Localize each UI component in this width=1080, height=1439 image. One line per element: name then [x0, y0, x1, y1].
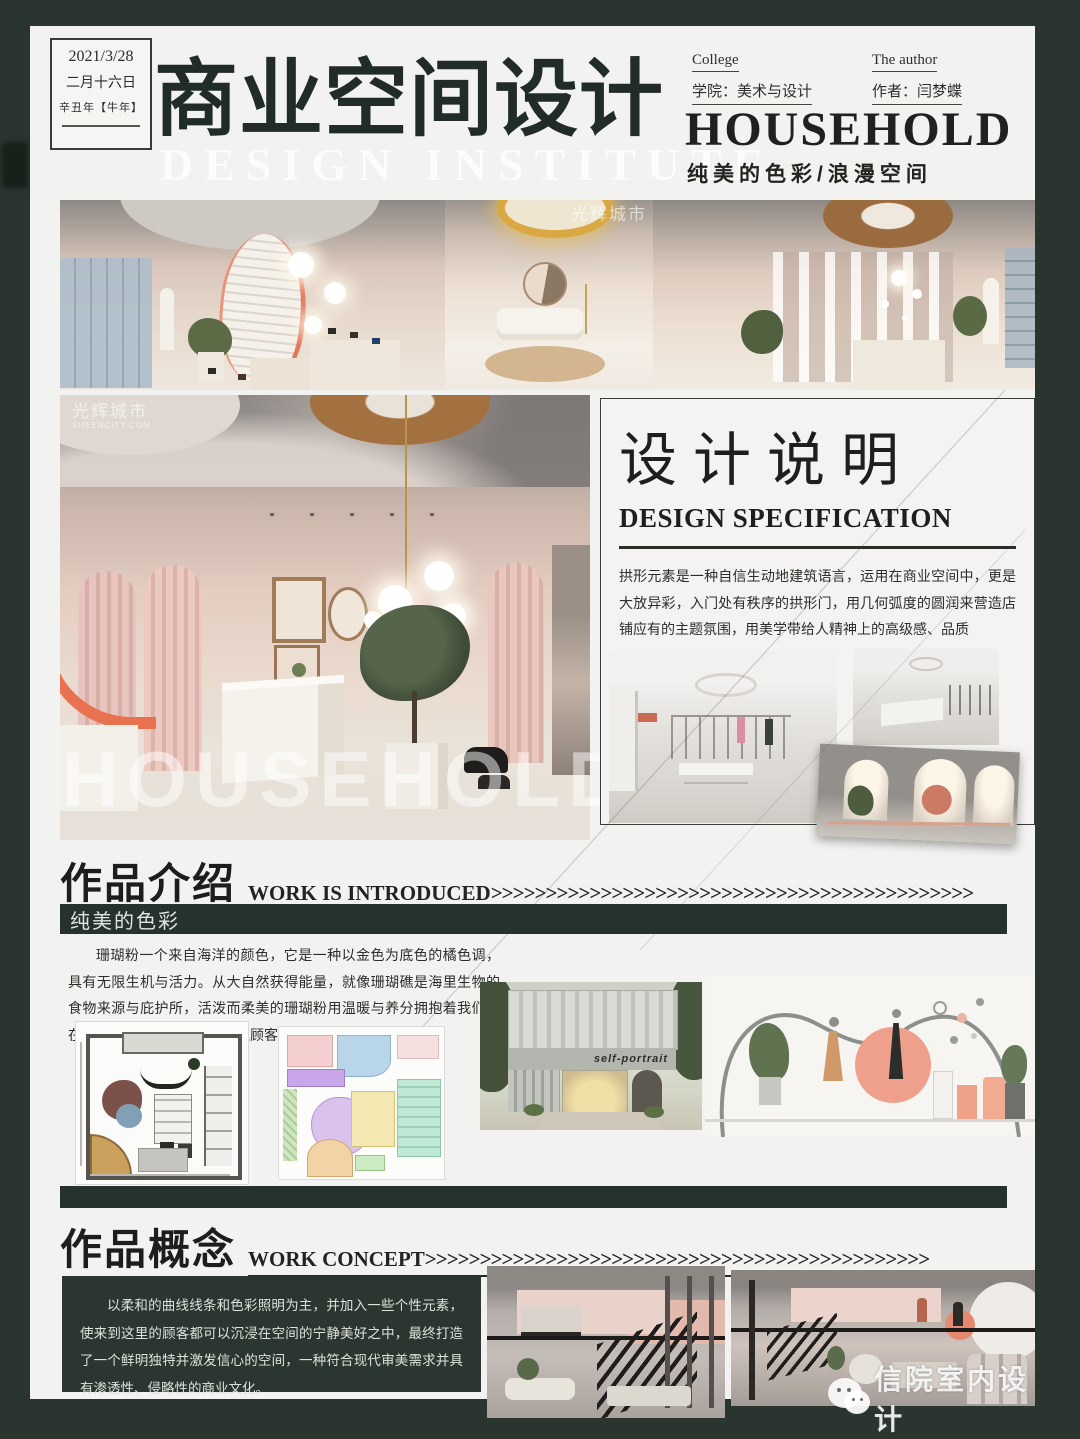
display-table [679, 763, 753, 775]
pendant-light [288, 252, 314, 278]
stair-white [60, 725, 138, 811]
lounge-blob-blue [116, 1104, 142, 1128]
zone-yellow [351, 1091, 395, 1147]
design-spec-body: 拱形元素是一种自信生动地建筑语言，运用在商业空间中，更是大放异彩，入门处有秩序的… [619, 563, 1016, 643]
work-concept-body-box: 以柔和的曲线线条和色彩照明为主，并加入一些个性元素，使来到这里的顾客都可以沉浸在… [62, 1276, 481, 1392]
plant-pot-right [1005, 1083, 1025, 1119]
side-window [1005, 248, 1035, 368]
window-wall [60, 258, 152, 388]
panorama-render-1 [60, 200, 445, 390]
wall-trinkets [933, 1001, 947, 1015]
chair-silhouette [464, 747, 508, 773]
wall-mirror [523, 262, 567, 306]
sheencity-watermark: 光辉城市 SHEENCITY.COM [72, 403, 151, 430]
wechat-icon [828, 1378, 866, 1418]
design-spec-divider [619, 546, 1016, 549]
zone-mint [397, 1079, 441, 1157]
fixture-grid [154, 1094, 192, 1144]
glow-arch-3 [973, 764, 1016, 826]
sofa-lower [505, 1378, 575, 1400]
poster-frame: 2021/3/28 二月十六日 辛丑年【牛年】 商业空间设计 DESIGN IN… [0, 0, 1080, 1439]
panorama-render-3 [653, 200, 1035, 390]
panorama-render-2: 光辉城市 [445, 200, 653, 390]
tree-planter [386, 743, 448, 809]
date-gregorian: 2021/3/28 [69, 48, 134, 66]
floor-line [705, 1119, 1035, 1122]
wechat-eye-2 [847, 1388, 851, 1392]
rug-grey [138, 1148, 188, 1172]
college-label: College [692, 52, 739, 72]
date-divider [62, 125, 140, 127]
wechat-eye-4 [860, 1398, 863, 1401]
spot-track [270, 513, 450, 516]
concept-section-render-1 [487, 1266, 725, 1418]
sign-band: self-portrait [508, 1048, 676, 1070]
arch-curtain-3 [488, 563, 544, 763]
shelf-line [827, 821, 1011, 826]
pink-garment [737, 717, 745, 743]
work-intro-arrows: >>>>>>>>>>>>>>>>>>>>>>>>>>>>>>>>>>>>>>>>… [491, 881, 974, 905]
ceiling-light-ring [695, 673, 757, 697]
reception-desk [222, 683, 344, 784]
floor-plan-furniture [75, 1021, 249, 1185]
plant-pot-left [759, 1077, 781, 1105]
platform-bed [881, 698, 943, 727]
arch-display-render [705, 975, 1035, 1137]
clothing-rack [671, 715, 791, 759]
wechat-bubble-small [844, 1390, 870, 1414]
plant-right [1001, 1045, 1027, 1085]
upper-counter [521, 1306, 581, 1336]
spec-render-large [609, 651, 837, 823]
date-box: 2021/3/28 二月十六日 辛丑年【牛年】 [50, 38, 152, 150]
facade-upper [508, 990, 678, 1050]
sheencity-en: SHEENCITY.COM [72, 422, 151, 431]
zone-green-small [355, 1155, 385, 1171]
design-spec-title-en: DESIGN SPECIFICATION [619, 503, 1016, 534]
wechat-account-name: 信院室内设计 [874, 1358, 1035, 1438]
round-rug [485, 346, 605, 382]
mannequin-head-2 [892, 1009, 901, 1018]
date-year: 辛丑年【牛年】 [59, 99, 143, 115]
storefront-sign: self-portrait [594, 1053, 668, 1065]
spec-render-small [853, 649, 999, 745]
right-mirror [552, 545, 590, 775]
wechat-eye-1 [837, 1388, 841, 1392]
shoes [328, 328, 336, 334]
dim-ticks-bottom [90, 1174, 230, 1176]
pendant-stem [405, 395, 407, 600]
mannequin-head-1 [829, 1017, 839, 1027]
college-block: College 学院：美术与设计 [692, 52, 812, 105]
small-tree [953, 296, 987, 336]
sofa [497, 308, 583, 334]
glass-glow [562, 1070, 628, 1114]
work-intro-title-cn: 作品介绍 [60, 850, 236, 911]
coral-stair-rail [60, 607, 156, 729]
pedestal-2 [957, 1085, 977, 1119]
zone-green-edge [283, 1089, 297, 1161]
section-divider-bar [60, 1186, 1007, 1208]
plant-left [741, 310, 783, 354]
coral-dot [945, 1310, 975, 1340]
edge-print-artifact [2, 142, 28, 188]
bed-lower [607, 1386, 691, 1406]
plan-plant [188, 1058, 200, 1070]
right-rooms [204, 1066, 232, 1166]
poster-title: 商业空间设计 [154, 32, 664, 153]
title-watermark: DESIGN INSTITUTE [160, 138, 774, 191]
ceiling-ring [823, 200, 953, 248]
wechat-watermark: 信院室内设计 [828, 1358, 1035, 1438]
author-block: The author 作者：闫梦蝶 [872, 52, 962, 105]
zone-palepink [397, 1035, 439, 1059]
upper-figure [917, 1298, 927, 1322]
desk-flower [292, 663, 306, 677]
tree-trunk [412, 691, 417, 751]
poster-page: 2021/3/28 二月十六日 辛丑年【牛年】 商业空间设计 DESIGN IN… [30, 26, 1035, 1399]
pendant-cluster [891, 270, 907, 286]
banner-label: 纯美的色彩 [70, 905, 180, 934]
date-lunar: 二月十六日 [66, 72, 136, 92]
pedestal-3 [983, 1077, 1005, 1119]
sheencity-cn: 光辉城市 [72, 403, 151, 422]
pedestal-1 [933, 1071, 953, 1119]
author-label: The author [872, 52, 937, 72]
storefront-render: self-portrait [480, 982, 702, 1130]
arch-door [632, 1070, 662, 1112]
brand-title: HOUSEHOLD [685, 102, 1012, 157]
floor-plan-zoning [278, 1026, 445, 1180]
wechat-eye-3 [852, 1398, 855, 1401]
rack-marks [949, 685, 993, 715]
dim-ticks-left [80, 1042, 82, 1166]
design-spec-title-cn: 设计说明 [619, 413, 1016, 497]
cabinet [853, 340, 945, 390]
sheencity-cn: 光辉城市 [571, 206, 647, 225]
spec-render-arches [816, 744, 1020, 845]
work-concept-title-cn: 作品概念 [60, 1216, 236, 1277]
panorama-strip: 光辉城市 [60, 200, 1035, 390]
big-white-circle [969, 1282, 1035, 1360]
work-intro-banner: 纯美的色彩 [60, 904, 1007, 934]
main-render: 光辉城市 SHEENCITY.COM [60, 395, 590, 840]
brand-tagline: 纯美的色彩/浪漫空间 [687, 158, 932, 188]
gold-floor-lamp [585, 284, 587, 334]
frame-post [749, 1280, 755, 1400]
work-concept-body: 以柔和的曲线线条和色彩照明为主，并加入一些个性元素，使来到这里的顾客都可以沉浸在… [80, 1298, 463, 1396]
zone-purple-band [287, 1069, 345, 1087]
zone-blue [337, 1035, 391, 1077]
left-doorway [609, 691, 638, 791]
tree-foliage [360, 605, 470, 701]
wall-frame-oval [328, 587, 368, 641]
stair-small [767, 1313, 837, 1380]
zone-pink [287, 1035, 333, 1067]
work-intro-en-text: WORK IS INTRODUCED [248, 881, 491, 905]
entry-band [122, 1032, 204, 1054]
zone-peach-fan [307, 1139, 353, 1177]
work-intro-header: 作品介绍 WORK IS INTRODUCED>>>>>>>>>>>>>>>>>… [60, 850, 1007, 911]
wall-frame-1 [272, 577, 326, 643]
planter [198, 352, 224, 382]
display-plinth [310, 340, 400, 390]
work-concept-en-text: WORK CONCEPT [248, 1247, 425, 1271]
path [540, 1112, 660, 1130]
ceiling-light [909, 657, 943, 671]
shrub [524, 1104, 544, 1116]
plant-lower [517, 1358, 539, 1380]
sheencity-watermark-strip: 光辉城市 [571, 206, 647, 225]
mannequin [160, 288, 174, 350]
